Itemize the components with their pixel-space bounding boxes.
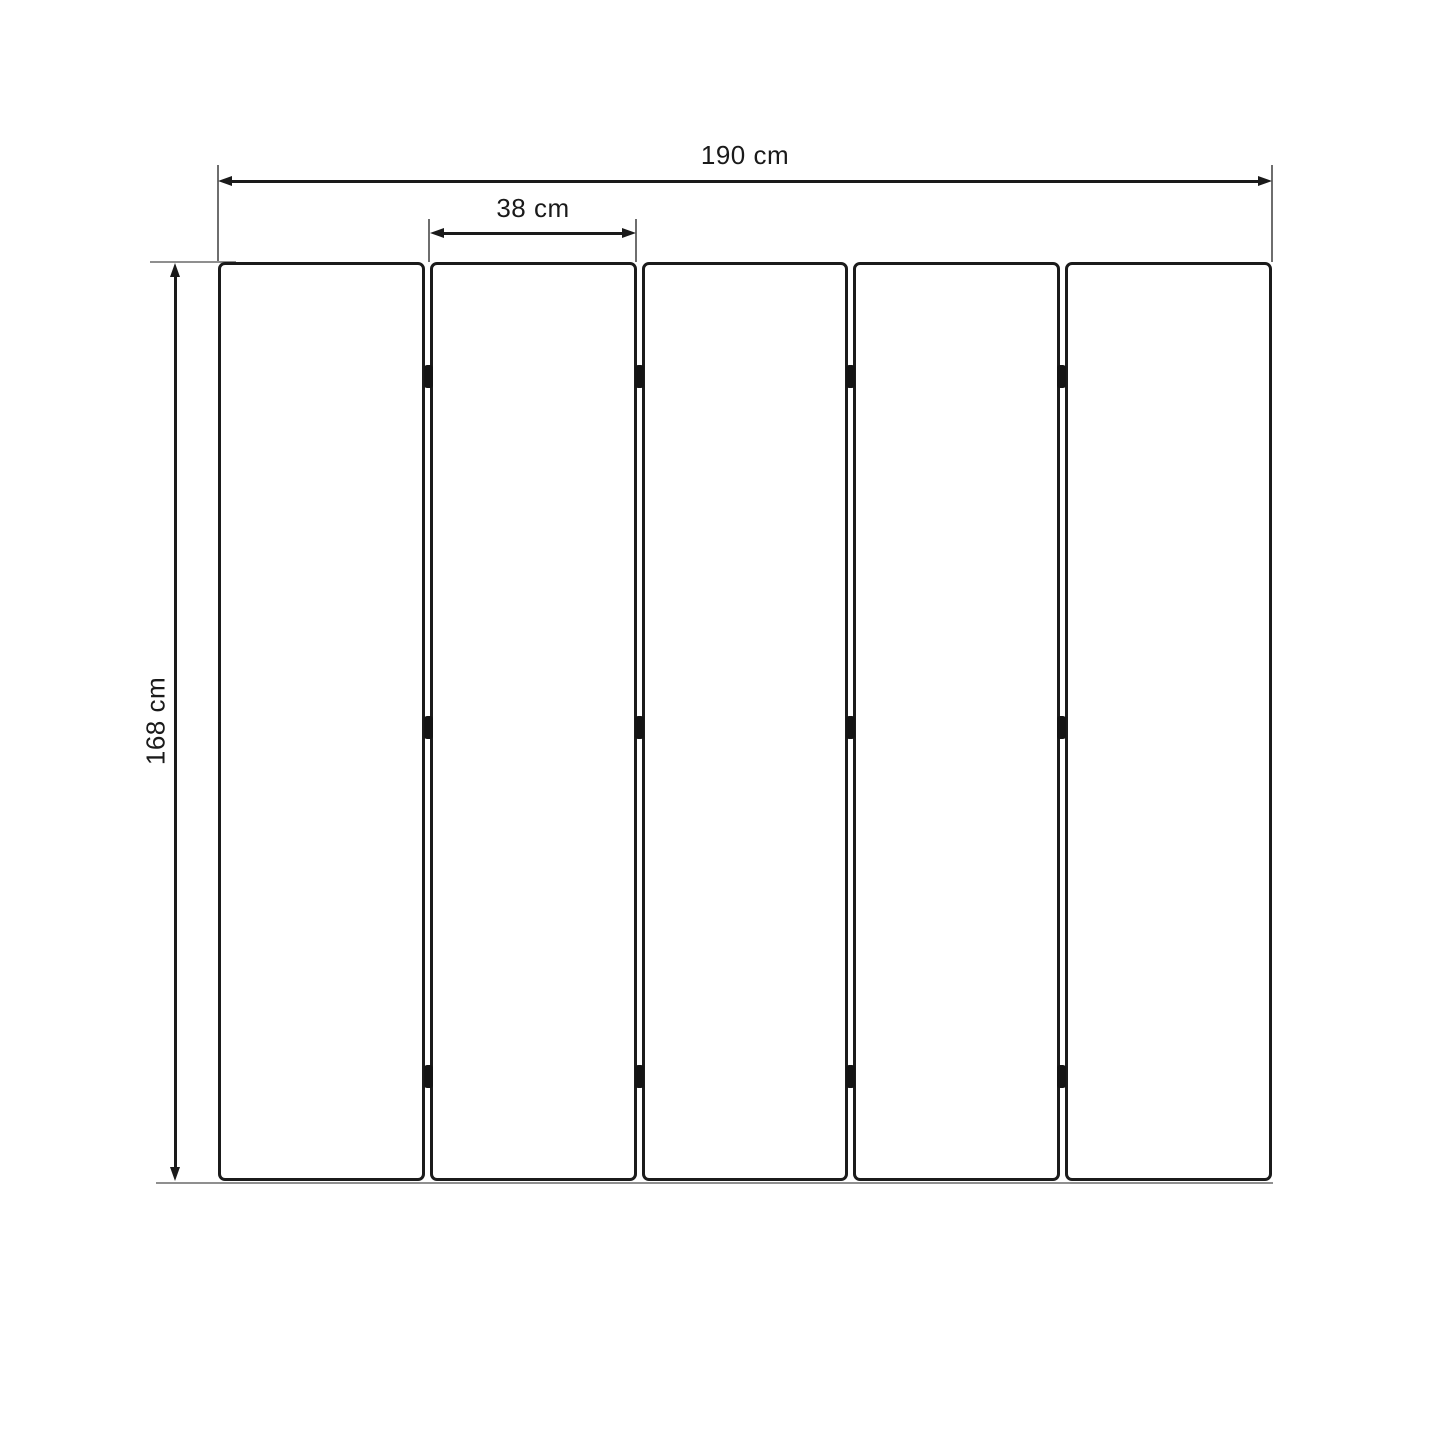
panel-width-label: 38 cm — [496, 193, 569, 224]
panel-1 — [218, 262, 425, 1181]
arrow-up-icon — [170, 263, 180, 277]
panel-width-dimension-line — [440, 232, 626, 235]
panel-2 — [430, 262, 637, 1181]
height-label: 168 cm — [141, 677, 172, 765]
panel-4 — [853, 262, 1060, 1181]
extension-line-panel-right — [635, 219, 637, 262]
total-width-label: 190 cm — [701, 140, 789, 171]
arrow-right-icon — [622, 228, 636, 238]
total-width-dimension-line — [228, 180, 1262, 183]
height-dimension-line — [174, 272, 177, 1172]
panel-5 — [1065, 262, 1272, 1181]
panel-3 — [642, 262, 849, 1181]
extension-line-panel-left — [428, 219, 430, 262]
arrow-left-icon — [430, 228, 444, 238]
arrow-down-icon — [170, 1167, 180, 1181]
arrow-right-icon — [1258, 176, 1272, 186]
panels-row — [218, 262, 1272, 1181]
ground-extension-line — [156, 1182, 1273, 1184]
diagram-canvas: 190 cm 38 cm 168 cm — [0, 0, 1445, 1445]
arrow-left-icon — [218, 176, 232, 186]
